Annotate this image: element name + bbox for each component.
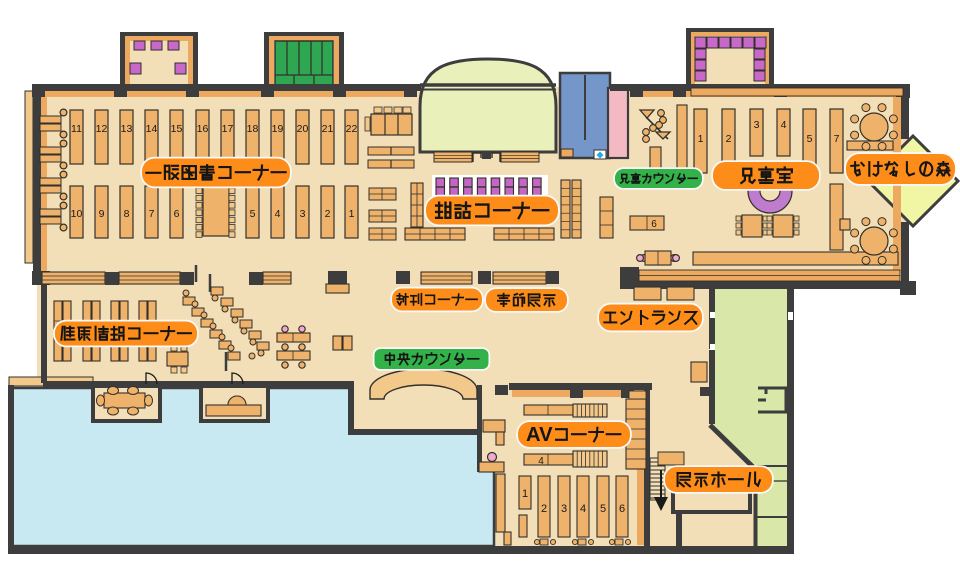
svg-text:2: 2 — [325, 208, 331, 220]
svg-text:22: 22 — [346, 123, 358, 135]
svg-text:20: 20 — [297, 123, 309, 135]
svg-text:18: 18 — [247, 123, 259, 135]
svg-text:14: 14 — [146, 123, 158, 135]
svg-text:3: 3 — [561, 503, 567, 515]
svg-text:7: 7 — [834, 133, 840, 145]
svg-text:7: 7 — [149, 208, 155, 220]
svg-text:12: 12 — [96, 123, 108, 135]
svg-text:4: 4 — [275, 208, 281, 220]
svg-text:1: 1 — [349, 208, 355, 220]
svg-text:5: 5 — [250, 208, 256, 220]
svg-text:8: 8 — [124, 208, 130, 220]
svg-text:3: 3 — [754, 119, 760, 131]
svg-text:6: 6 — [174, 208, 180, 220]
svg-text:15: 15 — [171, 123, 183, 135]
svg-text:2: 2 — [541, 503, 547, 515]
svg-text:10: 10 — [71, 208, 83, 220]
svg-text:3: 3 — [300, 208, 306, 220]
svg-text:4: 4 — [781, 119, 787, 131]
svg-text:17: 17 — [222, 123, 234, 135]
svg-text:1: 1 — [698, 133, 704, 145]
svg-text:4: 4 — [580, 503, 586, 515]
svg-text:21: 21 — [322, 123, 334, 135]
svg-text:6: 6 — [619, 503, 625, 515]
svg-text:5: 5 — [807, 133, 813, 145]
svg-text:5: 5 — [600, 503, 606, 515]
svg-text:19: 19 — [272, 123, 284, 135]
svg-text:4: 4 — [538, 456, 544, 467]
svg-text:6: 6 — [651, 219, 657, 230]
svg-text:9: 9 — [99, 208, 105, 220]
svg-text:13: 13 — [121, 123, 133, 135]
svg-text:AV: AV — [526, 424, 553, 446]
svg-text:1: 1 — [522, 488, 528, 500]
svg-text:16: 16 — [197, 123, 209, 135]
svg-text:2: 2 — [726, 133, 732, 145]
svg-text:11: 11 — [71, 123, 82, 135]
